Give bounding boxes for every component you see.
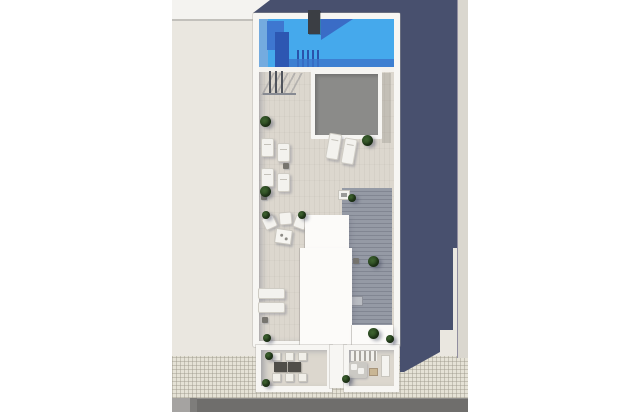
corner-sofa	[349, 362, 367, 378]
railing-post	[281, 71, 283, 93]
skylight-frame	[311, 70, 382, 139]
coffee-table	[274, 228, 293, 245]
skylight-shadow	[382, 73, 391, 143]
potted-plant	[386, 335, 394, 343]
potted-plant	[263, 334, 271, 342]
dining-chair	[272, 352, 281, 361]
lounge-terrace	[344, 345, 399, 392]
building-rooftop	[253, 13, 400, 347]
dining-chair	[298, 352, 307, 361]
penthouse-roof-main	[300, 248, 352, 347]
railing-post	[269, 71, 271, 93]
table-item	[284, 237, 287, 240]
chimney-block	[308, 10, 320, 34]
potted-plant	[260, 186, 271, 197]
lounger-pair-angled	[325, 133, 359, 165]
pool-edge-shadow	[289, 59, 394, 67]
sun-lounger	[261, 168, 274, 187]
dining-table	[288, 362, 301, 372]
sun-lounger	[277, 143, 290, 162]
dining-chair	[272, 373, 281, 382]
dining-table	[274, 362, 287, 372]
terrace-kitchen-item	[369, 368, 378, 376]
pergola-slats	[351, 351, 377, 361]
potted-plant	[348, 194, 356, 202]
potted-plant	[298, 211, 306, 219]
sofa-cushion	[358, 368, 364, 374]
swimming-pool	[259, 19, 394, 67]
table-item	[280, 234, 283, 237]
sun-lounger	[261, 138, 274, 157]
rooftop-render-photo	[172, 0, 468, 412]
railing-bar	[263, 93, 296, 95]
terrace-counter	[381, 355, 390, 377]
potted-plant	[262, 379, 270, 387]
potted-plant	[368, 328, 379, 339]
pool-deep-shadow	[275, 32, 289, 67]
potted-plant	[262, 211, 270, 219]
potted-plant	[260, 116, 271, 127]
potted-plant	[265, 352, 273, 360]
dining-chair	[285, 352, 294, 361]
skylight-glass	[315, 74, 378, 135]
neighbor-ground-strip	[457, 0, 468, 358]
side-table	[283, 163, 289, 169]
armchair	[278, 211, 292, 225]
side-table	[262, 317, 268, 323]
sun-lounger	[277, 173, 290, 192]
sun-lounger	[258, 288, 285, 299]
potted-plant	[368, 256, 379, 267]
chimney-shadow-on-pool	[321, 19, 353, 40]
dining-chair	[298, 373, 307, 382]
dining-chair	[285, 373, 294, 382]
deck-item	[353, 258, 359, 264]
sun-lounger	[258, 302, 285, 313]
sofa-cushion	[351, 364, 357, 370]
potted-plant	[362, 135, 373, 146]
potted-plant	[342, 375, 350, 383]
railing-post	[275, 71, 277, 93]
ac-grille	[341, 193, 347, 197]
penthouse-roof-upper	[305, 215, 349, 248]
page-canvas	[0, 0, 640, 412]
